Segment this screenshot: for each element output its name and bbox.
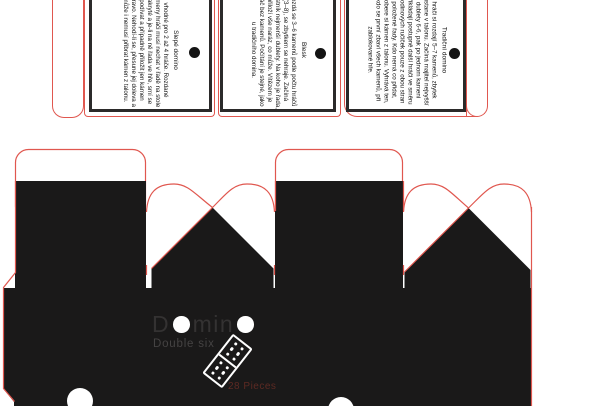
tag-rounded-end-flap-left	[52, 0, 84, 118]
rules-body: vhodné pro 2 až 4 hráče. Rozdané kameny …	[122, 0, 169, 107]
hang-hole-dot	[189, 47, 200, 58]
brand-title: D min	[152, 311, 254, 338]
tag-rounded-end-flap-right	[466, 0, 488, 117]
hang-hole-dot	[449, 48, 460, 59]
rules-text: Slepé domino vhodné pro 2 až 4 hráče. Ro…	[121, 0, 179, 109]
rules-text: Tradiční domino hráči si rozdají 5–7 kam…	[364, 0, 447, 109]
brand-letter-d: D	[152, 311, 170, 338]
box-dieline-drawing	[0, 140, 606, 406]
brand-subtitle: Double six	[153, 338, 215, 350]
hang-hole-dot	[315, 48, 326, 59]
rules-panel-tradicni-domino: Tradiční domino hráči si rozdají 5–7 kam…	[346, 0, 466, 112]
rules-body: hráči si rozdají 5–7 kamenů, zbytek zůst…	[365, 0, 437, 106]
brand-o-circle-icon	[173, 316, 190, 333]
tag-fold-line	[466, 0, 467, 116]
dieline-sheet: Slepé domino vhodné pro 2 až 4 hráče. Ro…	[0, 0, 606, 406]
printed-black-area	[4, 181, 533, 406]
rules-title: Tradiční domino	[438, 0, 446, 109]
rules-body: Rozdá se 3–6 kamenů podle počtu hráčů (3…	[250, 0, 297, 109]
brand-o-circle-icon	[237, 316, 254, 333]
rules-title: Blesk	[298, 0, 306, 109]
piece-count-label: 28 Pieces	[228, 381, 276, 392]
rules-title: Slepé domino	[171, 0, 179, 109]
brand-letters-min: min	[193, 311, 235, 338]
rules-text: Blesk Rozdá se 3–6 kamenů podle počtu hr…	[249, 0, 307, 109]
